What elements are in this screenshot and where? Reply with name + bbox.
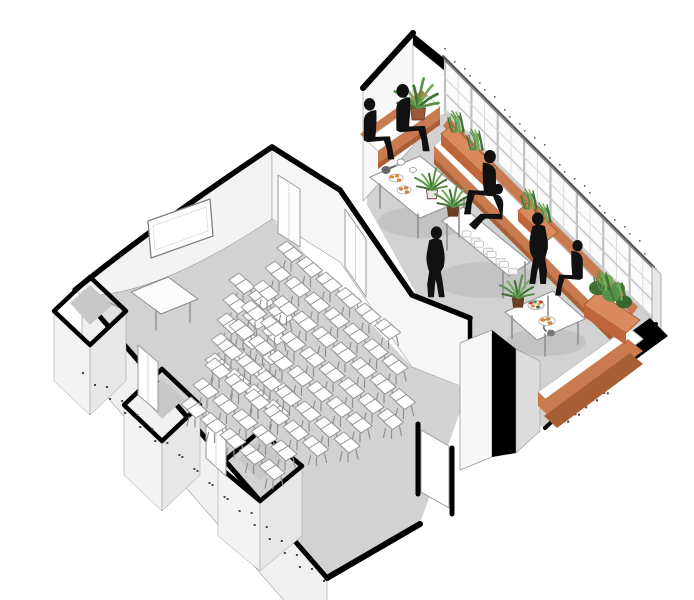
slab-speckle — [178, 454, 180, 456]
person-head — [364, 98, 375, 111]
serving-tray — [500, 262, 509, 268]
pastry — [399, 187, 403, 190]
croissant — [547, 321, 552, 325]
cut-speckle — [624, 226, 626, 228]
serving-tray — [475, 241, 484, 247]
cut-speckle — [509, 116, 511, 118]
lounge-se-side-wall — [516, 349, 540, 453]
scene-canvas — [0, 0, 694, 600]
slab-speckle — [596, 399, 598, 401]
cut-speckle — [604, 212, 606, 214]
cut-speckle — [629, 233, 631, 235]
cut-speckle — [544, 144, 546, 146]
slab-speckle — [212, 484, 214, 486]
cut-speckle — [454, 61, 456, 63]
cut-speckle — [479, 82, 481, 84]
slab-speckle — [193, 468, 195, 470]
slab-speckle — [299, 566, 301, 568]
slab-speckle — [578, 414, 580, 416]
cut-speckle — [464, 68, 466, 70]
fruit — [536, 306, 540, 309]
slab-speckle — [323, 580, 325, 582]
slab-speckle — [196, 470, 198, 472]
cut-speckle — [639, 240, 641, 242]
slab-speckle — [121, 400, 123, 402]
croissant — [540, 318, 545, 322]
pastry — [395, 174, 399, 177]
cut-speckle — [549, 157, 551, 159]
fruit — [539, 301, 543, 304]
serving-tray — [487, 251, 496, 257]
slab-speckle — [269, 538, 271, 540]
slab-speckle — [181, 456, 183, 458]
cut-speckle — [534, 137, 536, 139]
cut-speckle — [504, 109, 506, 111]
jug — [397, 159, 405, 165]
cut-speckle — [519, 123, 521, 125]
person-head — [532, 212, 543, 225]
slab-speckle — [311, 568, 313, 570]
plant-pot — [411, 108, 426, 120]
bowl — [410, 168, 417, 173]
serving-tray — [462, 231, 471, 237]
cut-speckle — [444, 48, 446, 50]
slab-speckle — [82, 372, 84, 374]
person-head — [493, 184, 503, 195]
slab-speckle — [151, 428, 153, 430]
slab-speckle — [281, 540, 283, 542]
fruit — [529, 302, 533, 305]
plant-pot — [512, 298, 524, 307]
slab-speckle — [266, 526, 268, 528]
slab-speckle — [239, 510, 241, 512]
person-head — [484, 150, 496, 163]
corner-cut-wedge — [413, 33, 445, 71]
slab-speckle — [109, 398, 111, 400]
slab-speckle — [284, 552, 286, 554]
pastry — [405, 190, 409, 193]
pastry — [397, 178, 401, 181]
cut-speckle — [574, 178, 576, 180]
kettle — [547, 330, 555, 337]
cut-speckle — [584, 185, 586, 187]
window-wall-end-post — [652, 266, 661, 331]
cut-speckle — [469, 75, 471, 77]
cut-speckle — [494, 96, 496, 98]
slab-speckle — [296, 554, 298, 556]
fruit — [531, 305, 535, 308]
slab-speckle — [154, 440, 156, 442]
cut-speckle — [589, 192, 591, 194]
fruit — [533, 301, 537, 304]
slab-speckle — [607, 392, 609, 394]
pastry — [404, 186, 408, 189]
cut-speckle — [564, 171, 566, 173]
slab-speckle — [254, 524, 256, 526]
slab-speckle — [139, 426, 141, 428]
slab-speckle — [94, 384, 96, 386]
cut-speckle — [524, 130, 526, 132]
cut-speckle — [484, 89, 486, 91]
kettle — [382, 166, 391, 174]
croissant — [545, 317, 550, 321]
slab-speckle — [106, 386, 108, 388]
cut-speckle — [614, 219, 616, 221]
cut-speckle — [644, 253, 646, 255]
serving-tray — [509, 269, 518, 275]
floor-plan-illustration — [0, 0, 694, 600]
slab-speckle — [166, 442, 168, 444]
person-head — [396, 84, 408, 98]
person-head — [431, 226, 442, 239]
pastry — [390, 175, 394, 178]
slab-speckle — [224, 496, 226, 498]
slab-speckle — [567, 421, 569, 423]
slab-speckle — [251, 512, 253, 514]
slab-speckle — [124, 412, 126, 414]
person-head — [572, 240, 582, 251]
slab-speckle — [227, 498, 229, 500]
slab-speckle — [209, 482, 211, 484]
plant-pot — [447, 207, 459, 216]
cut-speckle — [599, 205, 601, 207]
lounge-se-end-wall — [460, 330, 492, 470]
slab-speckle — [136, 414, 138, 416]
cut-speckle — [559, 164, 561, 166]
